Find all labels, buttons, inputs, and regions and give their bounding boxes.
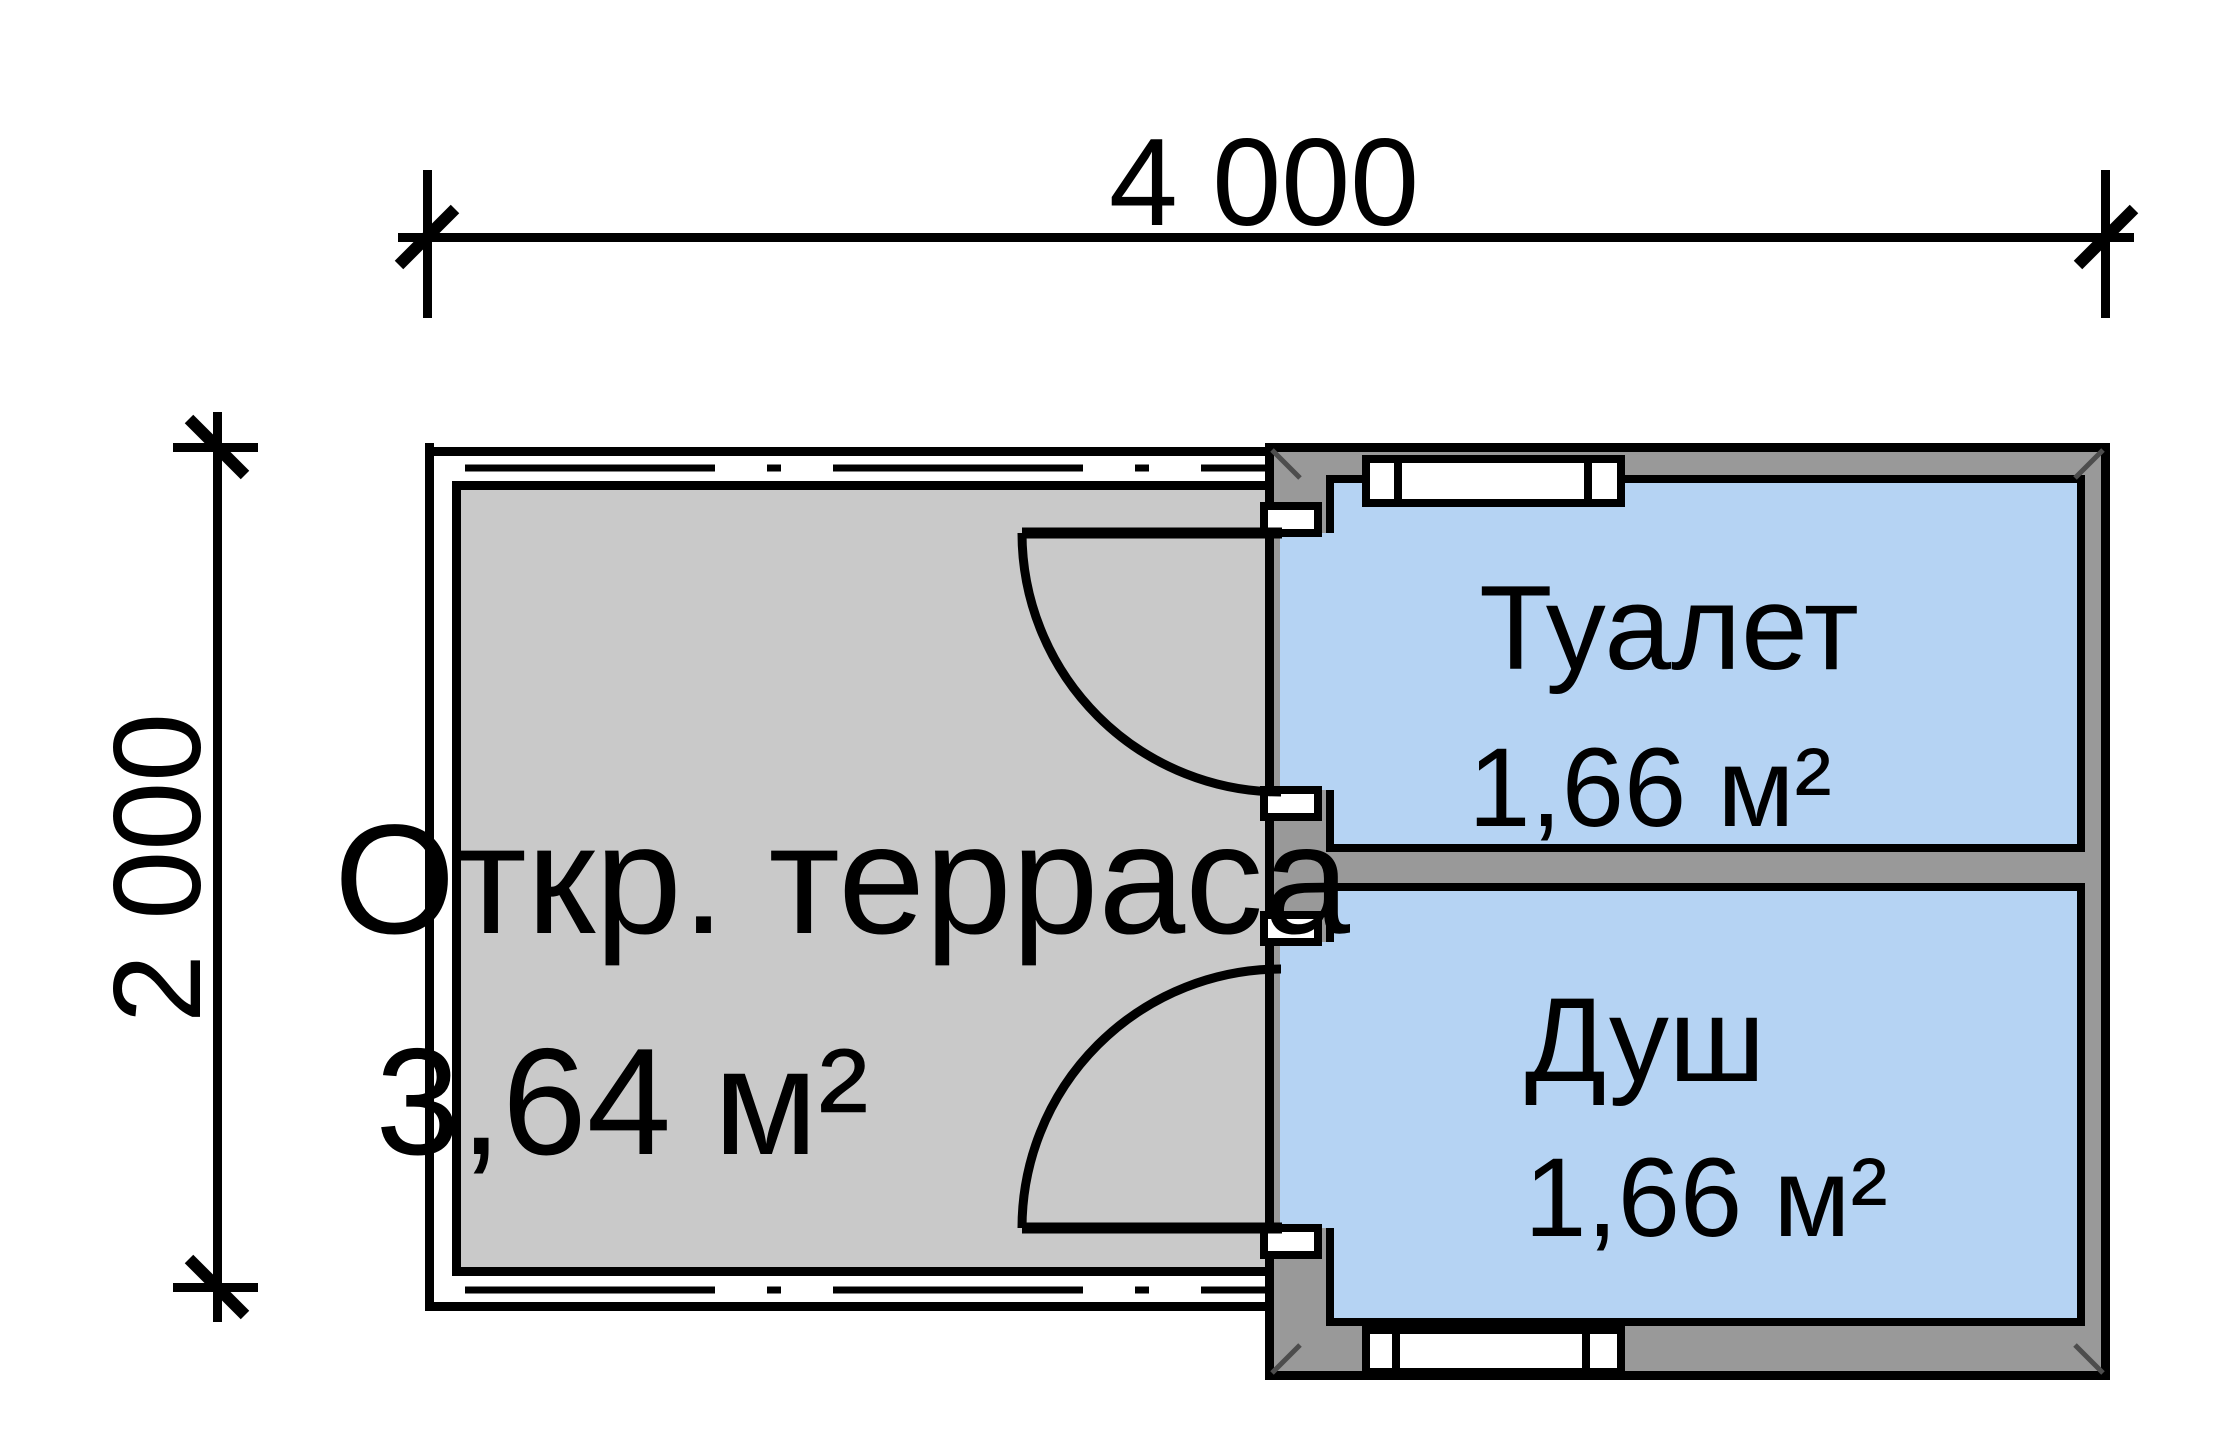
shower-door-opening bbox=[1280, 942, 1336, 1228]
toilet-label: Туалет bbox=[1479, 568, 1859, 688]
terrace-label: Откр. терраса bbox=[334, 802, 1350, 958]
window-bottom bbox=[1366, 1330, 1621, 1372]
terrace-area-label: 3,64 м² bbox=[375, 1026, 868, 1178]
dimension-label-width: 4 000 bbox=[1109, 121, 1419, 245]
shower-label: Душ bbox=[1525, 980, 1765, 1100]
dimension-label-height: 2 000 bbox=[96, 713, 220, 1023]
toilet-door-opening bbox=[1280, 533, 1336, 790]
shower-area-label: 1,66 м² bbox=[1524, 1142, 1887, 1254]
floor-plan-canvas: 4 000 2 000 Откр. терраса 3,64 м² Туалет… bbox=[0, 0, 2235, 1438]
window-top bbox=[1366, 459, 1621, 503]
toilet-area-label: 1,66 м² bbox=[1468, 732, 1831, 844]
